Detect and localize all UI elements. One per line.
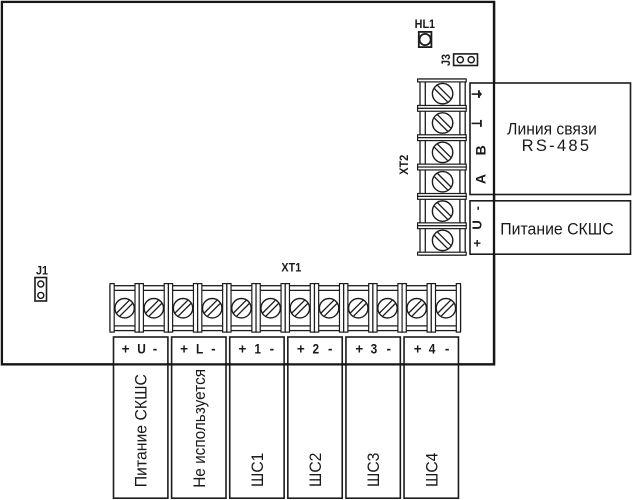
svg-text:Линия связи: Линия связи bbox=[507, 120, 597, 138]
svg-text:J1: J1 bbox=[36, 265, 49, 278]
svg-text:RS-485: RS-485 bbox=[522, 137, 592, 155]
svg-text:U: U bbox=[137, 341, 146, 357]
svg-text:B: B bbox=[472, 145, 488, 155]
svg-text:XT2: XT2 bbox=[398, 155, 410, 175]
svg-text:A: A bbox=[472, 174, 488, 184]
svg-text:+: + bbox=[180, 342, 188, 357]
svg-text:1: 1 bbox=[254, 341, 261, 357]
svg-text:ШС4: ШС4 bbox=[423, 453, 442, 487]
svg-text:J3: J3 bbox=[440, 54, 453, 66]
svg-text:L: L bbox=[196, 341, 203, 357]
svg-text:+: + bbox=[355, 342, 363, 357]
svg-text:-: - bbox=[386, 342, 391, 357]
svg-text:ШС1: ШС1 bbox=[248, 453, 267, 487]
svg-text:ШС3: ШС3 bbox=[365, 453, 384, 487]
svg-text:-: - bbox=[153, 342, 158, 357]
svg-text:Питание СКШС: Питание СКШС bbox=[500, 220, 614, 238]
svg-text:+: + bbox=[414, 342, 422, 357]
svg-text:+: + bbox=[122, 342, 130, 357]
svg-text:Питание СКШС: Питание СКШС bbox=[132, 374, 151, 487]
svg-text:HL1: HL1 bbox=[415, 19, 436, 32]
svg-text:-: - bbox=[445, 342, 450, 357]
svg-text:+: + bbox=[238, 342, 246, 357]
svg-text:+ U -: + U - bbox=[470, 203, 485, 247]
svg-text:3: 3 bbox=[371, 341, 378, 357]
svg-text:-: - bbox=[270, 342, 275, 357]
svg-text:Не используется: Не используется bbox=[190, 369, 209, 488]
svg-text:2: 2 bbox=[313, 341, 320, 357]
svg-text:ШС2: ШС2 bbox=[306, 453, 325, 487]
svg-text:-: - bbox=[211, 342, 216, 357]
svg-text:+: + bbox=[297, 342, 305, 357]
svg-text:4: 4 bbox=[429, 341, 436, 357]
svg-text:-: - bbox=[328, 342, 333, 357]
svg-text:XT1: XT1 bbox=[281, 262, 301, 275]
